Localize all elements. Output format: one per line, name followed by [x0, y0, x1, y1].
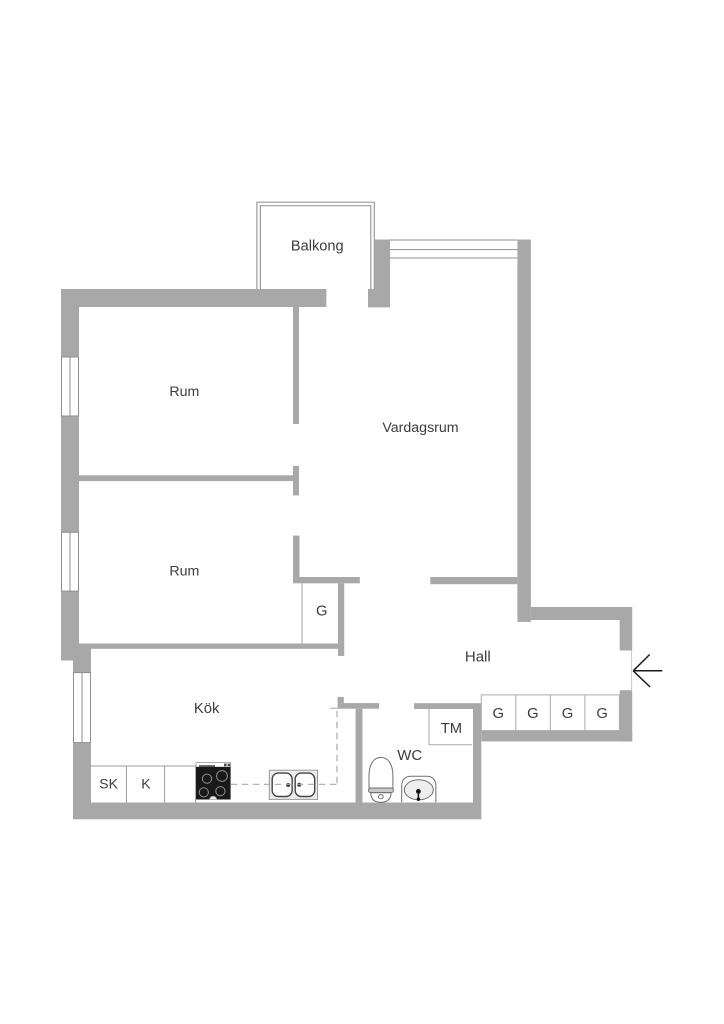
- svg-text:Hall: Hall: [465, 649, 491, 666]
- svg-text:G: G: [527, 706, 539, 722]
- svg-text:G: G: [493, 706, 505, 722]
- svg-text:Vardagsrum: Vardagsrum: [382, 420, 458, 436]
- svg-text:G: G: [596, 706, 608, 722]
- svg-text:WC: WC: [397, 747, 422, 764]
- svg-text:G: G: [562, 706, 574, 722]
- svg-text:SK: SK: [99, 776, 118, 792]
- svg-text:Rum: Rum: [169, 384, 199, 400]
- svg-text:Kök: Kök: [194, 701, 220, 717]
- svg-text:Rum: Rum: [169, 564, 199, 580]
- svg-text:G: G: [316, 603, 328, 619]
- svg-text:TM: TM: [441, 721, 462, 737]
- svg-text:K: K: [141, 776, 151, 792]
- svg-text:Balkong: Balkong: [291, 238, 344, 254]
